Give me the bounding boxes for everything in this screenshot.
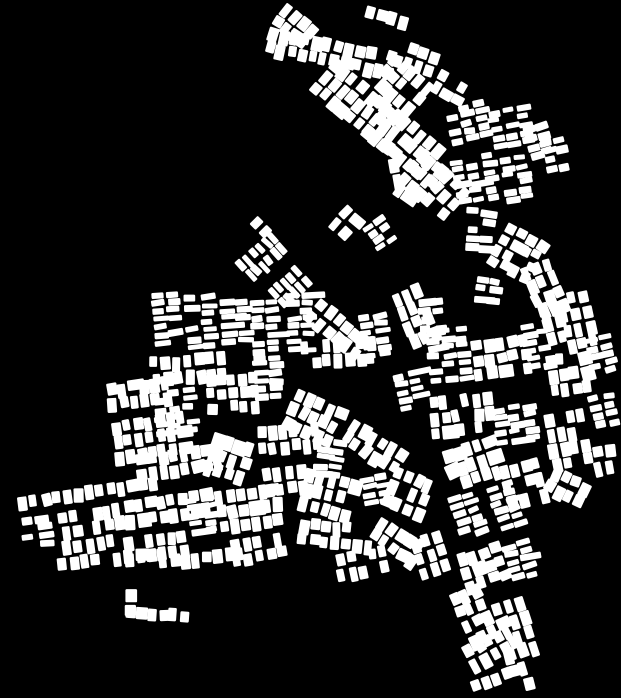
parcel	[473, 369, 483, 382]
parcel	[472, 393, 481, 408]
parcel	[291, 438, 301, 451]
parcel	[431, 297, 443, 305]
parcel	[151, 292, 164, 299]
parcel	[302, 439, 311, 455]
parcel	[319, 536, 328, 548]
map-block	[204, 371, 260, 417]
parcel	[204, 333, 219, 340]
parcel	[258, 442, 267, 454]
parcel	[122, 434, 132, 446]
parcel	[206, 387, 215, 398]
parcel	[265, 323, 277, 330]
parcel	[432, 307, 443, 314]
parcel	[236, 305, 253, 312]
parcel	[567, 365, 579, 379]
parcel	[201, 319, 213, 325]
parcel	[267, 425, 278, 441]
parcel	[135, 607, 148, 620]
parcel	[139, 380, 150, 395]
map-canvas	[0, 0, 621, 698]
parcel	[345, 352, 356, 367]
parcel	[454, 423, 466, 437]
parcel	[112, 552, 122, 567]
parcel	[278, 424, 288, 440]
parcel	[182, 403, 193, 410]
parcel	[466, 207, 479, 214]
parcel	[184, 295, 196, 302]
parcel	[441, 343, 454, 349]
parcel	[374, 319, 388, 325]
parcel	[486, 365, 499, 379]
parcel	[190, 553, 200, 569]
parcel	[473, 355, 485, 367]
parcel	[276, 545, 288, 557]
parcel	[456, 341, 468, 347]
parcel	[333, 340, 341, 354]
parcel	[322, 339, 330, 353]
parcel	[216, 374, 227, 386]
parcel	[302, 331, 314, 337]
parcel	[166, 291, 179, 298]
parcel	[270, 384, 283, 392]
parcel	[252, 360, 267, 366]
parcel	[441, 335, 456, 343]
parcel	[365, 46, 378, 60]
parcel	[180, 554, 191, 570]
parcel	[421, 316, 432, 325]
parcel	[310, 534, 321, 546]
figure-ground-map	[0, 0, 621, 698]
parcel	[272, 513, 284, 526]
parcel	[175, 530, 186, 543]
parcel	[456, 326, 468, 333]
parcel	[285, 300, 300, 308]
parcel	[148, 511, 157, 523]
parcel	[270, 393, 282, 400]
parcel	[264, 483, 276, 498]
parcel	[333, 354, 342, 369]
parcel	[156, 533, 166, 546]
parcel	[288, 346, 301, 352]
parcel	[286, 293, 299, 299]
parcel	[239, 330, 255, 336]
parcel	[169, 465, 180, 480]
parcel	[438, 327, 449, 333]
parcel	[220, 521, 230, 533]
parcel	[107, 398, 117, 413]
parcel	[68, 510, 78, 523]
parcel	[252, 341, 265, 348]
parcel	[130, 395, 139, 409]
parcel	[106, 382, 118, 396]
parcel	[301, 291, 325, 299]
parcel	[474, 421, 482, 433]
parcel	[266, 316, 281, 323]
parcel	[330, 536, 340, 550]
parcel	[170, 553, 182, 567]
parcel	[172, 371, 184, 385]
parcel	[114, 515, 127, 531]
parcel	[133, 417, 145, 431]
parcel	[287, 480, 298, 493]
parcel	[603, 392, 615, 399]
parcel	[207, 404, 218, 416]
parcel	[296, 533, 306, 545]
parcel	[426, 337, 440, 345]
parcel	[70, 556, 81, 570]
parcel	[124, 515, 135, 531]
parcel	[172, 357, 180, 372]
parcel	[482, 391, 494, 406]
parcel	[90, 554, 101, 566]
parcel	[254, 378, 269, 384]
parcel	[257, 426, 267, 438]
parcel	[240, 518, 251, 531]
parcel	[219, 298, 235, 306]
parcel	[149, 356, 157, 367]
parcel	[73, 488, 83, 503]
parcel	[201, 309, 214, 316]
parcel	[427, 352, 439, 359]
parcel	[17, 496, 28, 511]
parcel	[286, 339, 301, 345]
parcel	[582, 452, 593, 465]
parcel	[262, 515, 273, 529]
parcel	[104, 518, 115, 530]
parcel	[266, 547, 277, 560]
parcel	[275, 484, 285, 496]
parcel	[237, 374, 247, 387]
parcel	[474, 409, 484, 422]
parcel	[72, 540, 83, 553]
parcel	[123, 549, 134, 565]
parcel	[158, 452, 170, 467]
parcel	[465, 243, 479, 252]
parcel	[550, 384, 559, 396]
parcel	[147, 548, 158, 562]
parcel	[459, 359, 472, 365]
parcel	[216, 351, 226, 366]
parcel	[190, 445, 202, 460]
parcel	[168, 607, 177, 621]
parcel	[228, 387, 239, 399]
parcel	[342, 521, 352, 533]
parcel	[322, 354, 331, 367]
parcel	[154, 332, 169, 339]
parcel	[572, 382, 583, 394]
parcel	[40, 540, 55, 547]
parcel	[180, 611, 190, 623]
parcel	[287, 322, 299, 329]
parcel	[106, 482, 116, 495]
parcel	[217, 504, 227, 517]
parcel	[94, 484, 104, 497]
parcel	[166, 305, 180, 312]
parcel	[57, 512, 68, 524]
parcel	[592, 446, 604, 458]
parcel	[346, 550, 357, 562]
parcel	[300, 341, 309, 354]
parcel	[605, 444, 617, 458]
parcel	[206, 375, 217, 387]
parcel	[332, 522, 340, 537]
parcel	[272, 497, 283, 513]
parcel	[470, 340, 482, 351]
parcel	[513, 154, 525, 160]
parcel	[459, 367, 472, 375]
parcel	[301, 299, 313, 305]
parcel	[168, 298, 181, 306]
parcel	[555, 353, 563, 365]
parcel	[286, 330, 298, 336]
parcel	[238, 504, 250, 517]
parcel	[238, 337, 254, 343]
parcel	[204, 351, 215, 364]
parcel	[431, 428, 440, 439]
parcel	[57, 557, 68, 570]
parcel	[479, 236, 493, 244]
parcel	[494, 337, 505, 351]
parcel	[230, 400, 239, 411]
parcel	[239, 401, 248, 413]
parcel	[267, 339, 279, 345]
parcel	[269, 361, 284, 369]
parcel	[466, 235, 480, 242]
parcel	[125, 589, 137, 602]
parcel	[320, 521, 331, 533]
parcel	[288, 46, 297, 58]
parcel	[429, 413, 439, 428]
parcel	[318, 438, 330, 445]
parcel	[457, 351, 472, 359]
parcel	[203, 326, 217, 332]
parcel	[280, 441, 290, 455]
parcel	[310, 518, 321, 531]
parcel	[442, 412, 452, 424]
parcel	[152, 308, 164, 315]
parcel	[125, 449, 137, 465]
parcel	[111, 422, 122, 436]
parcel	[486, 297, 500, 305]
parcel	[285, 466, 294, 480]
parcel	[441, 360, 454, 367]
parcel	[138, 477, 149, 491]
parcel	[187, 336, 202, 344]
parcel	[246, 487, 257, 500]
parcel	[148, 378, 160, 394]
parcel	[169, 315, 183, 321]
parcel	[202, 552, 212, 563]
parcel	[498, 364, 515, 379]
parcel	[254, 370, 269, 376]
parcel	[250, 300, 265, 307]
parcel	[183, 355, 192, 368]
parcel	[235, 488, 246, 502]
parcel	[268, 345, 279, 351]
parcel	[155, 413, 167, 427]
parcel	[429, 368, 444, 375]
parcel	[21, 516, 33, 526]
parcel	[184, 305, 201, 312]
parcel	[114, 451, 125, 466]
parcel	[296, 464, 307, 480]
parcel	[176, 424, 194, 438]
parcel	[251, 401, 260, 415]
parcel	[160, 356, 172, 370]
parcel	[430, 377, 441, 384]
parcel	[72, 525, 84, 538]
parcel	[212, 549, 224, 564]
parcel	[144, 431, 153, 443]
parcel	[226, 489, 237, 503]
parcel	[581, 379, 592, 393]
parcel	[217, 389, 227, 400]
parcel	[186, 369, 195, 384]
parcel	[536, 328, 548, 334]
parcel	[202, 303, 218, 308]
parcel	[417, 307, 431, 315]
parcel	[149, 393, 160, 406]
parcel	[468, 226, 478, 233]
parcel	[254, 385, 266, 392]
parcel	[201, 495, 214, 502]
parcel	[288, 426, 298, 438]
parcel	[250, 322, 264, 329]
parcel	[203, 342, 216, 349]
parcel	[310, 422, 319, 437]
parcel	[145, 452, 157, 464]
parcel	[251, 307, 264, 313]
parcel	[221, 338, 236, 346]
parcel	[265, 299, 277, 305]
parcel	[167, 532, 176, 545]
parcel	[312, 357, 322, 368]
parcel	[438, 395, 448, 410]
parcel	[234, 299, 247, 306]
parcel	[235, 314, 251, 321]
parcel	[255, 393, 269, 401]
parcel	[226, 374, 235, 385]
parcel	[445, 375, 459, 383]
parcel	[340, 538, 351, 550]
parcel	[429, 396, 439, 408]
parcel	[148, 477, 159, 492]
parcel	[368, 548, 376, 559]
parcel	[147, 608, 157, 621]
parcel	[125, 606, 136, 619]
parcel	[464, 127, 476, 135]
parcel	[268, 355, 281, 361]
parcel	[158, 554, 167, 568]
parcel	[548, 370, 560, 386]
parcel	[51, 491, 61, 504]
